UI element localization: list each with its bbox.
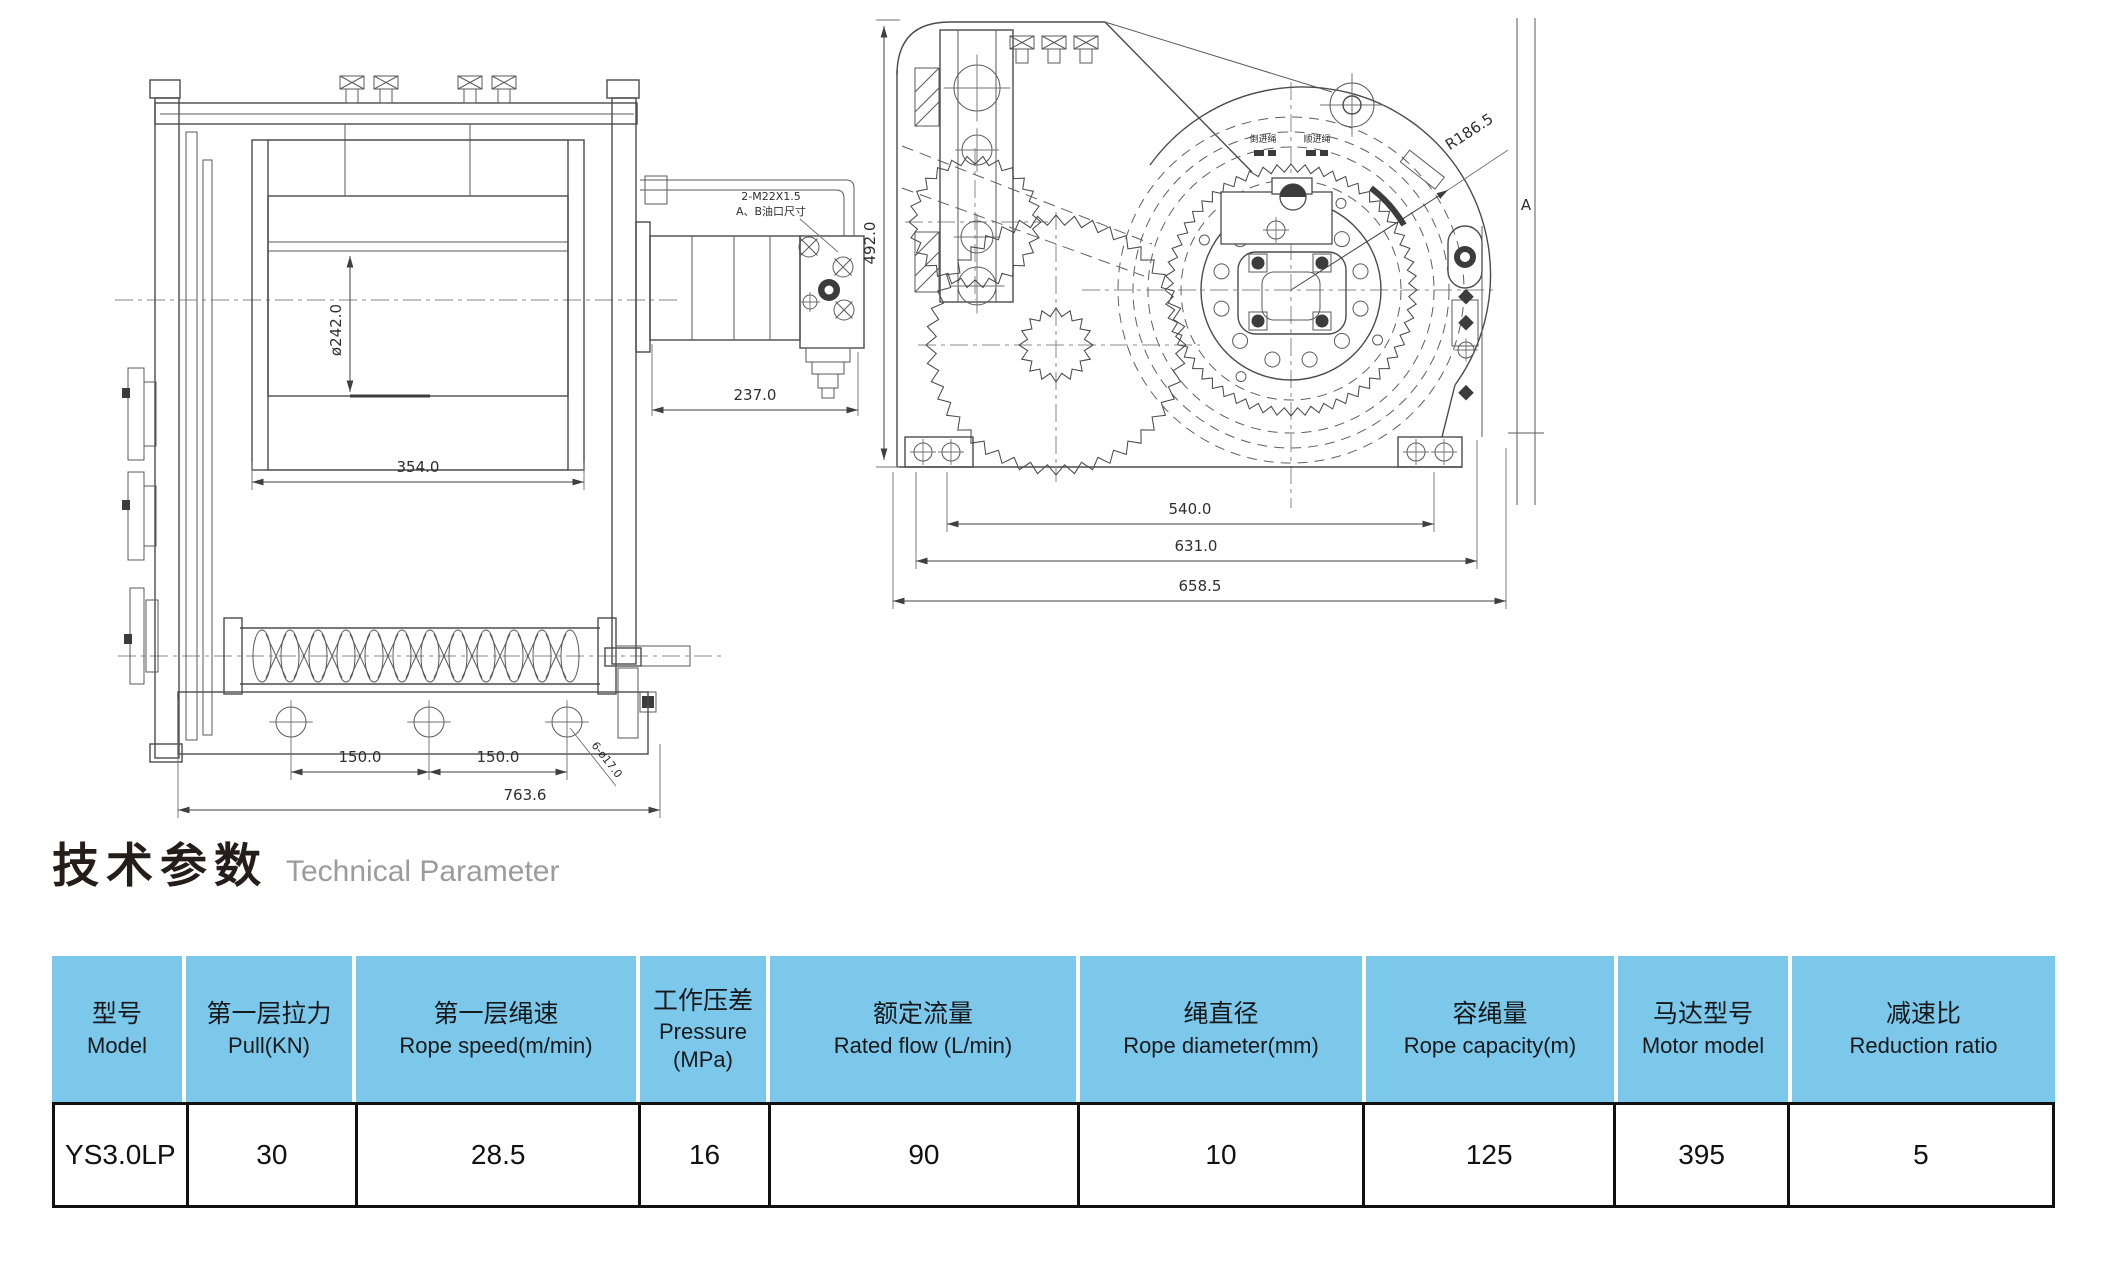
label-rope-in-right: 顺进绳	[1303, 133, 1330, 145]
section-title: 技术参数 Technical Parameter	[52, 842, 559, 889]
col-header-model: 型号 Model	[52, 956, 186, 1102]
dim-drum-length: 354.0	[397, 458, 440, 476]
header-en: Pressure (MPa)	[640, 1018, 766, 1073]
header-zh: 马达型号	[1653, 998, 1753, 1032]
col-header-pressure: 工作压差 Pressure (MPa)	[640, 956, 770, 1102]
header-en: Rope speed(m/min)	[399, 1032, 592, 1060]
header-zh: 工作压差	[653, 985, 753, 1019]
cell-rope-diameter: 10	[1080, 1105, 1365, 1205]
section-title-zh: 技术参数	[52, 842, 268, 889]
parameter-table: 型号 Model 第一层拉力 Pull(KN) 第一层绳速 Rope speed…	[52, 956, 2055, 1208]
bolt-icon	[340, 76, 364, 103]
table-header-row: 型号 Model 第一层拉力 Pull(KN) 第一层绳速 Rope speed…	[52, 956, 2055, 1102]
col-header-rope-capacity: 容绳量 Rope capacity(m)	[1366, 956, 1618, 1102]
dim-base-width: 763.6	[504, 786, 547, 804]
col-header-pull: 第一层拉力 Pull(KN)	[186, 956, 356, 1102]
col-header-motor-model: 马达型号 Motor model	[1618, 956, 1792, 1102]
bolt-icon	[1074, 36, 1098, 63]
dim-hole-spacing-2: 150.0	[477, 748, 520, 766]
cell-pull: 30	[189, 1105, 359, 1205]
winch-spec-sheet: ø242.0 354.0 2-M22X1.5 A、B油口尺寸	[0, 0, 2110, 1263]
header-zh: 型号	[92, 998, 142, 1032]
note-port-thread: 2-M22X1.5	[741, 190, 801, 203]
side-view-drawing: ø242.0 354.0 2-M22X1.5 A、B油口尺寸	[115, 76, 864, 818]
cell-pressure: 16	[641, 1105, 771, 1205]
header-en: Rated flow (L/min)	[834, 1032, 1013, 1060]
cell-model: YS3.0LP	[55, 1105, 189, 1205]
cell-rated-flow: 90	[771, 1105, 1080, 1205]
note-port-size: A、B油口尺寸	[736, 204, 806, 218]
header-zh: 额定流量	[873, 998, 973, 1032]
bolt-icon	[1042, 36, 1066, 63]
col-header-rated-flow: 额定流量 Rated flow (L/min)	[770, 956, 1080, 1102]
dim-drum-diameter: ø242.0	[327, 304, 345, 356]
header-zh: 容绳量	[1452, 998, 1527, 1032]
gear-end-view-drawing: 倒进绳 顺进绳 R186.5 A 492.0 540.0	[861, 18, 1544, 609]
cell-rope-capacity: 125	[1365, 1105, 1616, 1205]
col-header-rope-speed: 第一层绳速 Rope speed(m/min)	[356, 956, 640, 1102]
cell-reduction-ratio: 5	[1790, 1105, 2052, 1205]
dim-motor-length: 237.0	[734, 386, 777, 404]
col-header-rope-diameter: 绳直径 Rope diameter(mm)	[1080, 956, 1366, 1102]
dim-hole-spacing-1: 150.0	[339, 748, 382, 766]
header-zh: 绳直径	[1183, 998, 1258, 1032]
bolt-icon	[492, 76, 516, 103]
dim-flange-radius: R186.5	[1442, 110, 1497, 154]
header-en: Pull(KN)	[228, 1032, 310, 1060]
header-zh: 减速比	[1886, 998, 1961, 1032]
cell-rope-speed: 28.5	[358, 1105, 641, 1205]
dim-bolt-span: 540.0	[1169, 500, 1212, 518]
dim-overall-width: 658.5	[1179, 577, 1222, 595]
section-title-en: Technical Parameter	[286, 855, 559, 890]
header-zh: 第一层绳速	[433, 998, 558, 1032]
cell-motor-model: 395	[1616, 1105, 1789, 1205]
header-en: Model	[87, 1032, 147, 1060]
header-zh: 第一层拉力	[206, 998, 331, 1032]
label-rope-in-left: 倒进绳	[1249, 133, 1276, 145]
dim-base-span: 631.0	[1175, 537, 1218, 555]
engineering-drawings: ø242.0 354.0 2-M22X1.5 A、B油口尺寸	[0, 0, 2110, 845]
header-en: Rope capacity(m)	[1404, 1032, 1576, 1060]
header-en: Rope diameter(mm)	[1123, 1032, 1319, 1060]
header-en: Motor model	[1642, 1032, 1764, 1060]
header-en: Reduction ratio	[1850, 1032, 1998, 1060]
table-data-row: YS3.0LP 30 28.5 16 90 10 125 395 5	[52, 1102, 2055, 1208]
section-label: A	[1521, 196, 1532, 214]
col-header-reduction-ratio: 减速比 Reduction ratio	[1792, 956, 2055, 1102]
bolt-icon	[458, 76, 482, 103]
bolt-icon	[374, 76, 398, 103]
dim-overall-height: 492.0	[861, 222, 879, 265]
